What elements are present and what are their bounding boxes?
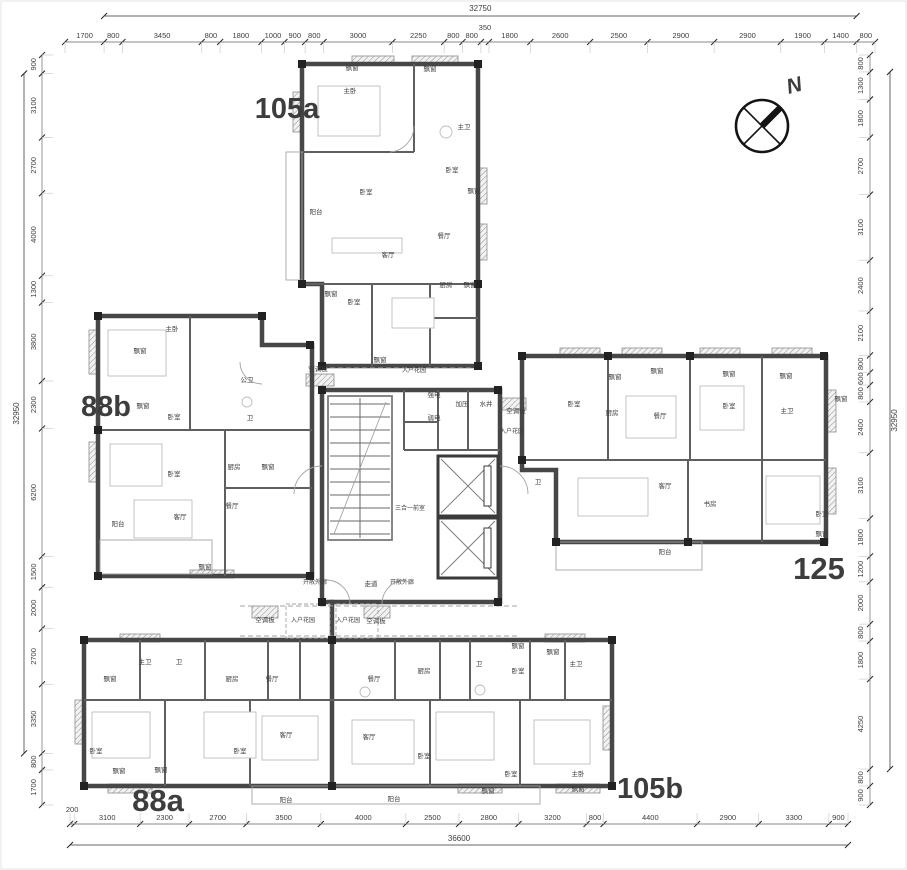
room-label: 主卫 <box>458 122 472 131</box>
room-label: 主卫 <box>570 659 584 668</box>
dim-label: 1300 <box>856 77 865 94</box>
dim-label: 800 <box>205 31 218 40</box>
dim-label: 2900 <box>739 31 756 40</box>
dim-label: 3450 <box>154 31 171 40</box>
room-label: 主卫 <box>781 406 795 415</box>
dim-label: 3200 <box>544 813 561 822</box>
dim-label: 800 <box>29 755 38 768</box>
room-label: 入户花园 <box>500 427 524 435</box>
dim-label: 4000 <box>29 226 38 243</box>
dim-label: 2800 <box>480 813 497 822</box>
dim-label: 900 <box>289 31 302 40</box>
dim-label: 2000 <box>29 600 38 617</box>
room-label: 空调板 <box>308 364 328 373</box>
room-label: 飘窗 <box>424 64 437 73</box>
room-label: 餐厅 <box>438 231 452 240</box>
room-label: 客厅 <box>174 512 188 521</box>
room-label: 卫 <box>476 660 483 668</box>
room-label: 飘窗 <box>113 766 126 775</box>
dim-label: 1900 <box>794 31 811 40</box>
room-label: 飘窗 <box>199 562 212 571</box>
room-label: 飘窗 <box>547 647 560 656</box>
room-label: 主卫 <box>139 657 153 666</box>
room-label: 厨房 <box>606 408 619 417</box>
room-label: 卧室 <box>512 666 526 675</box>
room-label: 客厅 <box>363 732 377 741</box>
dim-label: 1700 <box>29 779 38 796</box>
room-label: 弱电 <box>428 413 442 422</box>
room-label: 卫 <box>247 414 254 422</box>
room-label: 空调板 <box>506 406 526 415</box>
room-label: 加压 <box>456 399 470 408</box>
room-label: 入户花园 <box>336 616 360 624</box>
room-label: 卫 <box>535 478 542 486</box>
dim-label: 2100 <box>856 325 865 342</box>
dim-label: 1200 <box>856 561 865 578</box>
dim-label: 1500 <box>29 564 38 581</box>
unit-label-125: 125 <box>793 551 845 586</box>
room-label: 三合一前室 <box>395 504 425 512</box>
room-label: 开敞外廊 <box>390 578 414 586</box>
room-label: 厨房 <box>440 280 453 289</box>
dim-overall-label: 32750 <box>469 4 492 13</box>
dim-label: 2700 <box>856 158 865 175</box>
dim-label: 4000 <box>355 813 372 822</box>
dim-label: 1300 <box>29 281 38 298</box>
room-label: 水井 <box>480 399 494 408</box>
dim-label: 2500 <box>424 813 441 822</box>
dim-label: 800 <box>856 626 865 639</box>
room-label: 飘窗 <box>262 462 275 471</box>
floor-plan-sheet: N 飘窗飘窗主卧主卫卧室飘窗阳台卧室客厅餐厅厨房飘窗卧室飘窗飘窗空调板入户花园强… <box>0 0 907 870</box>
dim-label: 900 <box>832 813 845 822</box>
room-label: 卧室 <box>168 412 182 421</box>
room-label: 厨房 <box>228 462 241 471</box>
room-label: 卧室 <box>234 746 248 755</box>
room-label: 卧室 <box>723 401 737 410</box>
dim-label: 1000 <box>265 31 282 40</box>
dim-label: 2700 <box>29 157 38 174</box>
room-label: 阳台 <box>112 519 125 528</box>
dim-label: 2700 <box>209 813 226 822</box>
room-label: 飘窗 <box>155 765 168 774</box>
unit-label-105b: 105b <box>617 773 683 805</box>
room-label: 走道 <box>365 579 379 588</box>
room-label: 飘窗 <box>325 289 338 298</box>
dim-label: 1800 <box>856 110 865 127</box>
room-label: 卧室 <box>568 399 582 408</box>
dim-label: 3500 <box>275 813 292 822</box>
dim-label: 3100 <box>99 813 116 822</box>
room-label: 飘窗 <box>482 786 495 795</box>
room-label: 飘窗 <box>572 784 585 793</box>
dim-label: 800 <box>856 358 865 371</box>
dim-label: 800 <box>856 387 865 400</box>
dim-label: 4250 <box>856 716 865 733</box>
unit-label-88b: 88b <box>81 391 131 423</box>
dim-label: 2300 <box>156 813 173 822</box>
room-label: 飘窗 <box>137 401 150 410</box>
room-label: 餐厅 <box>226 501 240 510</box>
room-label: 卧室 <box>90 746 104 755</box>
dim-label: 2700 <box>29 648 38 665</box>
dim-overall-label: 32950 <box>12 402 21 425</box>
room-label: 公卫 <box>241 376 255 384</box>
room-label: 飘窗 <box>780 371 793 380</box>
dim-label: 800 <box>856 57 865 70</box>
dim-label: 3100 <box>856 219 865 236</box>
room-label: 卧室 <box>360 187 374 196</box>
room-label: 主卧 <box>166 324 180 333</box>
dim-label: 1800 <box>232 31 249 40</box>
room-label: 卧室 <box>505 769 519 778</box>
room-label: 卫 <box>176 658 183 666</box>
room-label: 卧室 <box>168 469 182 478</box>
dim-overall-label: 36600 <box>448 834 471 843</box>
room-label: 客厅 <box>280 730 294 739</box>
room-label: 飘窗 <box>816 529 829 538</box>
dim-label: 1400 <box>832 31 849 40</box>
dim-label: 3100 <box>29 97 38 114</box>
dim-label: 900 <box>29 58 38 71</box>
room-label: 飘窗 <box>468 186 481 195</box>
dim-label: 2400 <box>856 277 865 294</box>
room-label: 餐厅 <box>654 411 668 420</box>
dim-overall-label: 32950 <box>890 409 899 432</box>
room-label: 卧室 <box>418 751 432 760</box>
room-label: 厨房 <box>418 666 431 675</box>
dim-label: 800 <box>856 771 865 784</box>
dim-label: 6200 <box>29 484 38 501</box>
room-label: 飘窗 <box>835 394 848 403</box>
room-label: 飘窗 <box>374 355 387 364</box>
dim-label: 4400 <box>642 813 659 822</box>
dim-label: 2300 <box>29 396 38 413</box>
room-label: 空调板 <box>255 615 275 624</box>
room-label: 飘窗 <box>346 63 359 72</box>
room-label: 餐厅 <box>368 674 382 683</box>
room-label: 飘窗 <box>464 280 477 289</box>
room-label: 飘窗 <box>723 369 736 378</box>
room-label: 卧室 <box>446 165 460 174</box>
dim-label: 3800 <box>29 333 38 350</box>
dim-label: 2400 <box>856 419 865 436</box>
room-label: 入户花园 <box>291 616 315 624</box>
room-label: 空调板 <box>366 616 386 625</box>
dim-label: 3100 <box>856 477 865 494</box>
dim-label: 3300 <box>785 813 802 822</box>
dim-label: 2000 <box>856 595 865 612</box>
room-label: 飘窗 <box>512 641 525 650</box>
room-label: 客厅 <box>382 250 396 259</box>
dim-label: 2900 <box>720 813 737 822</box>
dim-label: 1800 <box>856 652 865 669</box>
room-label: 入户花园 <box>402 366 426 374</box>
floor-plan-canvas: N 飘窗飘窗主卧主卫卧室飘窗阳台卧室客厅餐厅厨房飘窗卧室飘窗飘窗空调板入户花园强… <box>0 0 907 870</box>
room-label: 飘窗 <box>651 366 664 375</box>
dim-label: 900 <box>856 789 865 802</box>
dim-label: 3350 <box>29 711 38 728</box>
room-label: 主卧 <box>344 86 358 95</box>
dim-label: 350 <box>479 23 492 32</box>
dim-label: 1800 <box>856 529 865 546</box>
room-label: 阳台 <box>388 794 401 803</box>
room-label: 飘窗 <box>609 372 622 381</box>
dim-label: 800 <box>308 31 321 40</box>
dim-label: 600 <box>856 372 865 385</box>
room-label: 开敞外廊 <box>303 578 327 586</box>
dim-label: 2250 <box>410 31 427 40</box>
dim-label: 800 <box>107 31 120 40</box>
dim-label: 2900 <box>672 31 689 40</box>
room-label: 强电 <box>428 390 442 399</box>
dim-label: 2500 <box>610 31 627 40</box>
dim-label: 1700 <box>76 31 93 40</box>
unit-label-105a: 105a <box>255 93 320 125</box>
room-label: 卧室 <box>816 509 830 518</box>
room-label: 客厅 <box>659 481 673 490</box>
dim-label: 800 <box>589 813 602 822</box>
dim-label: 2600 <box>552 31 569 40</box>
room-label: 阳台 <box>280 795 293 804</box>
room-label: 厨房 <box>226 674 239 683</box>
room-label: 阳台 <box>659 547 672 556</box>
dim-label: 3000 <box>350 31 367 40</box>
room-label: 飘窗 <box>134 346 147 355</box>
room-label: 阳台 <box>310 207 323 216</box>
dim-label: 800 <box>447 31 460 40</box>
room-label: 主卧 <box>572 769 586 778</box>
dim-label: 200 <box>66 805 79 814</box>
dim-label: 800 <box>465 31 478 40</box>
room-label: 餐厅 <box>266 674 280 683</box>
room-label: 书房 <box>704 499 717 508</box>
dim-label: 1800 <box>501 31 518 40</box>
dim-label: 800 <box>860 31 873 40</box>
room-label: 飘窗 <box>104 674 117 683</box>
room-label: 卧室 <box>348 297 362 306</box>
